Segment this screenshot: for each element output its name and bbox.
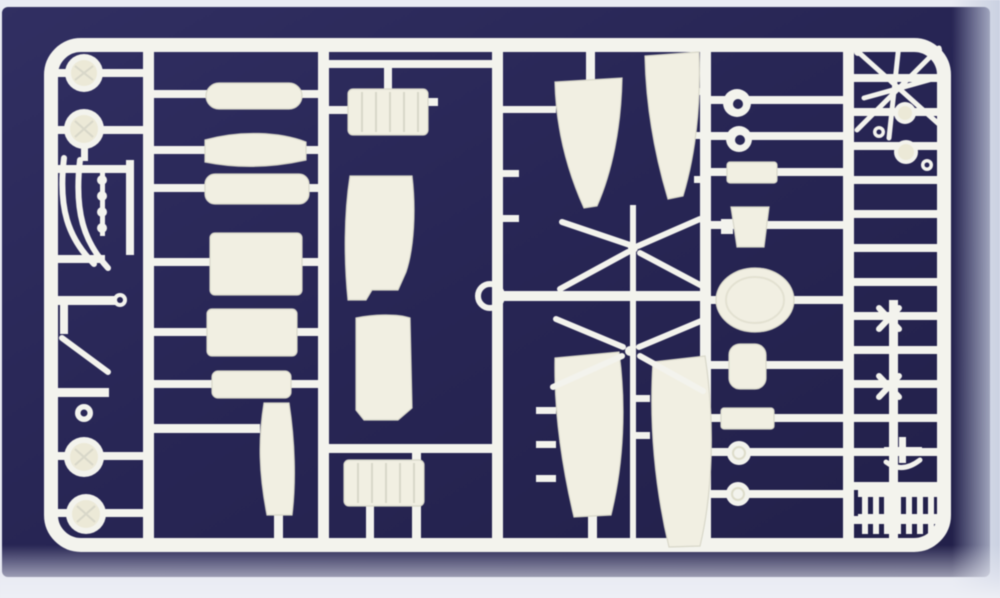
detail-ring [873,126,885,138]
small-disc-part [75,404,93,422]
main-wheel [66,494,106,534]
runner-stub [126,160,134,255]
detail-ring [726,126,752,152]
small-wheel [894,140,918,164]
runner-stub [148,380,214,388]
cowl-front-oval [716,268,794,332]
runner-row [705,490,843,498]
runner-stub [55,509,67,517]
runner-tick [536,441,556,448]
runner-stub [586,50,595,82]
hull-block-part [356,315,412,420]
runner-horizontal-center [497,291,705,301]
runner-vertical-1 [143,44,154,546]
runner-stub [274,513,283,543]
main-wheel [64,109,104,149]
runner-horizontal-top [322,60,502,68]
runner-tick [634,432,650,439]
fuselage-half [205,133,306,166]
runner-row [705,361,843,369]
float-section [210,233,302,295]
main-wheel [65,54,103,92]
ladder-rung [848,482,940,490]
runner-tick [503,215,519,222]
detail-ring [921,159,933,171]
ladder-rung [848,278,940,286]
runner-stub [148,90,208,98]
runner-stub [148,146,207,154]
runner-stub [102,452,144,460]
runner-row [705,132,843,140]
detail-knob [727,441,751,465]
runner-thin-vertical [630,205,636,545]
runner-stub [101,126,145,134]
fuselage-half [206,83,302,109]
detail-tube [727,162,777,183]
ladder-rung [848,244,940,252]
runner-tick [503,170,519,177]
engine-cowling-cylinder [344,460,424,506]
runner-horizontal [148,424,260,433]
runner-stub [503,106,556,113]
detail-knob [726,482,750,506]
runner-horizontal [57,388,109,397]
runner-stub [103,509,143,517]
ladder-rung [848,414,940,422]
fuselage-half [212,371,291,398]
runner-stub [288,380,320,388]
runner-stub [384,60,392,91]
main-wheel [64,437,104,477]
ladder-rung [848,176,940,184]
runner-horizontal [57,165,132,173]
ladder-rung [848,142,940,150]
runner-stub [148,328,209,336]
runner-stub [148,258,212,266]
runner-stub [148,184,207,192]
sprue-svg [0,0,1000,598]
ladder-rung [848,210,940,218]
runner-tick [536,475,556,482]
small-wheel [894,102,916,124]
runner-tick [634,395,650,402]
sprue-photo [0,0,1000,598]
detail-tube [721,408,774,429]
fin-rudder [260,403,294,515]
runner-vertical-5 [843,44,854,546]
blob-part [729,344,766,389]
runner-horizontal [318,444,496,453]
detail-ring [723,89,751,117]
runner-stub [100,69,145,77]
fuselage-half [207,309,297,356]
runner-row [705,448,843,456]
fuselage-half [205,174,309,204]
bottom-edge-fade [0,545,1000,598]
runner-tick [694,176,706,183]
runner-tick [536,407,556,414]
right-edge-fade [952,0,1000,598]
runner-stub [588,515,597,543]
runner-stub [366,504,374,542]
runner-stub [294,328,320,336]
runner-vertical-2 [318,44,329,546]
engine-cowling-cylinder [348,89,428,135]
ladder-rung [848,346,940,354]
